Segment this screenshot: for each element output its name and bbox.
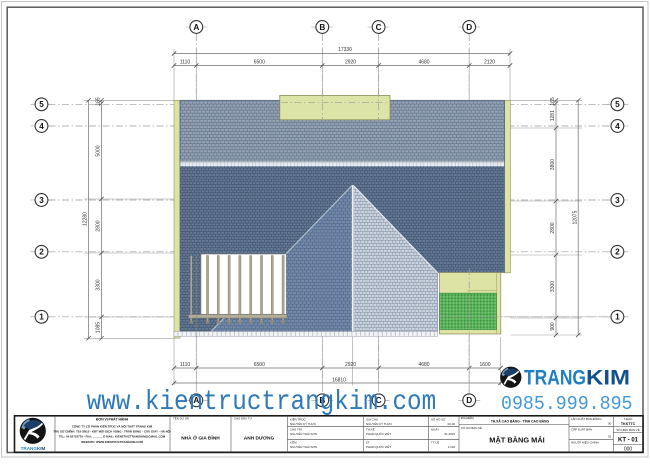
svg-text:2800: 2800 [96, 220, 102, 231]
svg-text:CÔNG TY CỔ PHẦN KIẾN TRÚC VÀ N: CÔNG TY CỔ PHẦN KIẾN TRÚC VÀ NỘI THẤT TR… [72, 424, 153, 429]
svg-text:5: 5 [39, 100, 44, 109]
svg-text:01-2015: 01-2015 [444, 432, 455, 436]
svg-text:3: 3 [39, 196, 44, 205]
svg-text:900: 900 [550, 322, 556, 331]
svg-text:PHẠM QUỐC VIỆT: PHẠM QUỐC VIỆT [366, 431, 391, 436]
svg-text:12280: 12280 [83, 212, 89, 226]
svg-text:1600: 1600 [479, 362, 490, 368]
svg-text:TỶ LỆ: TỶ LỆ [431, 440, 439, 445]
svg-text:0985.999.895: 0985.999.895 [501, 393, 633, 415]
svg-text:1:100: 1:100 [448, 445, 456, 449]
svg-text:KT - 01: KT - 01 [618, 438, 639, 444]
svg-text:00: 00 [608, 422, 612, 426]
svg-text:6500: 6500 [254, 60, 265, 66]
svg-text:NGUYỄN KỸ THỰC: NGUYỄN KỸ THỰC [290, 421, 316, 426]
svg-text:TRANGKIM: TRANGKIM [524, 367, 630, 390]
svg-text:www.kientructrangkim.com: www.kientructrangkim.com [87, 387, 437, 418]
svg-text:CHỦ TRÌ: CHỦ TRÌ [290, 427, 302, 432]
svg-text:2920: 2920 [345, 362, 356, 368]
svg-text:D: D [466, 23, 472, 32]
svg-text:2: 2 [39, 248, 44, 257]
svg-text:MẶT BẰNG MÁI: MẶT BẰNG MÁI [489, 435, 544, 444]
svg-text:1: 1 [39, 313, 44, 322]
svg-text:1281: 1281 [550, 110, 556, 121]
svg-text:LẦN XUẤT BẢN-ĐỒNG: LẦN XUẤT BẢN-ĐỒNG [571, 416, 602, 421]
svg-text:2120: 2120 [484, 60, 495, 66]
svg-text:HỒ SƠ BẢN VẼ: HỒ SƠ BẢN VẼ [461, 425, 482, 430]
svg-text:1: 1 [615, 313, 620, 322]
svg-text:2920: 2920 [345, 60, 356, 66]
svg-text:2: 2 [615, 248, 620, 257]
svg-text:NGUYỄN THÁI SƠN: NGUYỄN THÁI SƠN [290, 444, 317, 449]
svg-text:1085: 1085 [96, 322, 102, 333]
svg-text:TKKTTC: TKKTTC [621, 422, 636, 426]
svg-text:4: 4 [39, 122, 44, 131]
svg-text:T-ĐẠO: T-ĐẠO [624, 417, 634, 421]
svg-text:16810: 16810 [332, 377, 346, 383]
svg-text:PHẠM QUỐC VIỆT: PHẠM QUỐC VIỆT [366, 444, 391, 449]
svg-text:TRỤ SỞ CHÍNH: T16-SN15 - KĐT M: TRỤ SỞ CHÍNH: T16-SN15 - KĐT MỚI DỊCH VỌ… [53, 429, 171, 434]
svg-text:5: 5 [615, 100, 620, 109]
svg-text:TRANGKIM: TRANGKIM [21, 446, 46, 451]
svg-text:4680: 4680 [418, 362, 429, 368]
svg-text:01: 01 [608, 435, 612, 439]
svg-text:ANH DƯƠNG: ANH DƯƠNG [244, 436, 275, 442]
svg-text:WEBSITE: WWW.KIENTRUCTRANGKIM.: WEBSITE: WWW.KIENTRUCTRANGKIM.COM [81, 440, 143, 444]
svg-text:3: 3 [615, 196, 620, 205]
svg-text:D: D [466, 396, 472, 405]
svg-text:NGÀY: NGÀY [431, 428, 439, 432]
svg-text:SỐ HIỆU BẢN VẼ: SỐ HIỆU BẢN VẼ [616, 427, 639, 432]
svg-text:6500: 6500 [254, 362, 265, 368]
svg-text:3300: 3300 [96, 279, 102, 290]
svg-text:4680: 4680 [418, 60, 429, 66]
svg-text:TH.KẾ: TH.KẾ [366, 427, 375, 432]
svg-text:C: C [376, 23, 382, 32]
svg-text:NGUYỄN THÁI SƠN: NGUYỄN THÁI SƠN [290, 431, 317, 436]
svg-text:NGƯỜI HIỆU CHỈNH: NGƯỜI HIỆU CHỈNH [571, 440, 599, 445]
svg-text:17330: 17330 [338, 47, 352, 53]
svg-text:KT.: KT. [366, 441, 370, 445]
svg-text:4: 4 [615, 122, 620, 131]
svg-text:NGUYỄN KỸ THỰC: NGUYỄN KỸ THỰC [366, 421, 392, 426]
svg-text:TH.XÃ CAO BẰNG - TỈNH CAO BẰNG: TH.XÃ CAO BẰNG - TỈNH CAO BẰNG [491, 419, 550, 424]
svg-text:A: A [193, 23, 199, 32]
svg-text:1110: 1110 [180, 362, 191, 368]
svg-text:3800: 3800 [550, 159, 556, 170]
svg-text:1110: 1110 [180, 60, 191, 66]
svg-text:ĐỊA ĐIỂM: ĐỊA ĐIỂM [461, 415, 474, 420]
svg-text:5000: 5000 [96, 145, 102, 156]
svg-text:165: 165 [550, 97, 556, 106]
svg-text:165: 165 [96, 97, 102, 106]
svg-text:TEL: 04.62753779 - FAX: ......: TEL: 04.62753779 - FAX: ............ E-M… [59, 435, 166, 439]
svg-text:KỒM: KỒM [290, 440, 297, 445]
svg-text:CẤP XUẤT BẢN: CẤP XUẤT BẢN [571, 427, 592, 432]
svg-text:000: 000 [624, 447, 633, 453]
svg-text:12075: 12075 [572, 210, 578, 224]
svg-text:00-00: 00-00 [448, 422, 456, 426]
svg-text:2800: 2800 [550, 222, 556, 233]
svg-text:B: B [319, 23, 325, 32]
svg-text:3300: 3300 [550, 281, 556, 292]
